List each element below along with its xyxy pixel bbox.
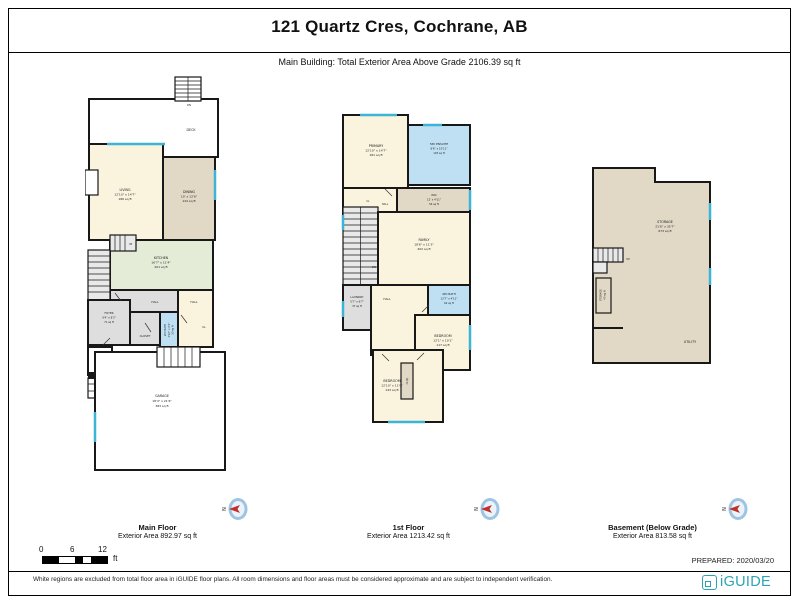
scale-0: 0 <box>39 545 43 554</box>
svg-text:5'7" x 6'7": 5'7" x 6'7" <box>350 300 364 304</box>
compass-n: N <box>474 507 480 511</box>
stairs-top <box>175 77 201 101</box>
stairs-left <box>88 250 110 300</box>
svg-text:WIC: WIC <box>431 193 437 197</box>
svg-text:5PC ENSUITE: 5PC ENSUITE <box>430 142 449 146</box>
main-floor-svg: DN DECK LIVING 12'10" x 14'7" 186 sq ft … <box>85 75 230 477</box>
bay-window <box>85 170 98 195</box>
stairs-dn-label: DN <box>372 265 376 269</box>
svg-text:10' x 12'6": 10' x 12'6" <box>181 195 198 199</box>
first-floor-svg: PRIMARY 12'10" x 14'7" 181 sq ft 5PC ENS… <box>340 105 477 445</box>
iguide-logo: iGUIDE <box>702 574 771 590</box>
main-floor-caption: Main Floor Exterior Area 892.97 sq ft <box>85 523 230 540</box>
svg-text:4PC BATH: 4PC BATH <box>442 292 456 296</box>
svg-text:FAMILY: FAMILY <box>418 238 430 242</box>
scale-bar-strip <box>42 556 108 564</box>
compass-n: N <box>222 507 228 511</box>
svg-text:BEDROOM: BEDROOM <box>383 379 400 383</box>
svg-text:40 sq ft: 40 sq ft <box>603 290 607 299</box>
floorplan-page: 121 Quartz Cres, Cochrane, AB Main Build… <box>0 0 799 616</box>
compass-main: N <box>222 494 252 524</box>
svg-text:LAUNDRY: LAUNDRY <box>350 295 364 299</box>
svg-text:30 sq ft: 30 sq ft <box>171 325 175 334</box>
laundry-label: LAUNDRY 5'7" x 6'7" 37 sq ft <box>350 295 364 308</box>
main-floor-area: Exterior Area 892.97 sq ft <box>85 532 230 540</box>
svg-text:2PC BATH: 2PC BATH <box>163 324 167 336</box>
first-floor-caption: 1st Floor Exterior Area 1213.42 sq ft <box>340 523 477 540</box>
svg-text:12'10" x 14'7": 12'10" x 14'7" <box>365 149 387 153</box>
first-floor-plan: PRIMARY 12'10" x 14'7" 181 sq ft 5PC ENS… <box>340 105 477 450</box>
svg-text:181 sq ft: 181 sq ft <box>369 153 383 157</box>
deck-label: DECK <box>186 128 196 132</box>
svg-text:18'4" x 21'6": 18'4" x 21'6" <box>152 399 172 403</box>
svg-text:8'6" x 10'11": 8'6" x 10'11" <box>431 147 448 151</box>
stairs <box>343 207 378 285</box>
main-floor-name: Main Floor <box>85 523 230 532</box>
svg-text:STORAGE: STORAGE <box>657 220 673 224</box>
svg-text:103 sq ft: 103 sq ft <box>433 151 444 155</box>
svg-text:202 sq ft: 202 sq ft <box>417 247 431 251</box>
svg-text:117 sq ft: 117 sq ft <box>436 343 450 347</box>
hall-left-label: HALL <box>151 300 159 304</box>
basement-caption: Basement (Below Grade) Exterior Area 813… <box>565 523 740 540</box>
svg-text:201 sq ft: 201 sq ft <box>154 265 168 269</box>
svg-text:143 sq ft: 143 sq ft <box>385 388 399 392</box>
svg-text:71 sq ft: 71 sq ft <box>104 320 114 324</box>
svg-text:DINING: DINING <box>183 190 195 194</box>
svg-text:9'4" x 8'2": 9'4" x 8'2" <box>102 316 116 320</box>
hall-right-label: HALL <box>190 300 198 304</box>
svg-text:673 sq ft: 673 sq ft <box>658 229 672 233</box>
scale-6: 6 <box>70 545 74 554</box>
stairs-up-label: UP <box>129 242 133 246</box>
compass-first: N <box>474 494 504 524</box>
cl-label: CL <box>202 325 206 329</box>
hall-small-label: HALL <box>382 202 389 206</box>
svg-text:KITCHEN: KITCHEN <box>154 256 169 260</box>
svg-text:BEDROOM: BEDROOM <box>434 334 451 338</box>
svg-text:21'6" x 35'7": 21'6" x 35'7" <box>655 225 675 229</box>
footer-rule <box>8 571 791 572</box>
prepared-date: PREPARED: 2020/03/20 <box>692 556 774 565</box>
iguide-logo-icon <box>702 575 717 590</box>
svg-text:186 sq ft: 186 sq ft <box>118 197 132 201</box>
stairs-top-label: DN <box>187 103 191 107</box>
page-subtitle: Main Building: Total Exterior Area Above… <box>0 57 799 67</box>
closet-label: CLOSET <box>140 334 151 338</box>
garage-room <box>95 352 225 470</box>
svg-text:18'6" x 11'3": 18'6" x 11'3" <box>414 243 434 247</box>
svg-text:GARAGE: GARAGE <box>155 394 169 398</box>
svg-text:16'7" x 11'4": 16'7" x 11'4" <box>151 261 171 265</box>
garage-entry-stairs <box>157 347 200 367</box>
main-floor-plan: DN DECK LIVING 12'10" x 14'7" 186 sq ft … <box>85 75 230 482</box>
compass-basement: N <box>722 494 752 524</box>
basement-svg: STORAGE 21'6" x 35'7" 673 sq ft UP STORA… <box>590 165 717 372</box>
compass-n: N <box>722 507 728 511</box>
svg-text:PRIMARY: PRIMARY <box>369 144 384 148</box>
first-floor-area: Exterior Area 1213.42 sq ft <box>340 532 477 540</box>
utility-label: UTILITY <box>684 340 697 344</box>
svg-text:37 sq ft: 37 sq ft <box>352 304 362 308</box>
svg-text:CL(S): CL(S) <box>405 378 409 385</box>
page-title: 121 Quartz Cres, Cochrane, AB <box>0 17 799 37</box>
svg-text:STORAGE: STORAGE <box>599 289 603 301</box>
svg-text:12' x 4'11": 12' x 4'11" <box>427 198 441 202</box>
basement-name: Basement (Below Grade) <box>565 523 740 532</box>
scale-bar: 0 6 12 ft <box>40 545 140 569</box>
svg-text:12'10" x 14'7": 12'10" x 14'7" <box>114 193 136 197</box>
svg-text:12'1" x 10'1": 12'1" x 10'1" <box>433 339 453 343</box>
ensuite-room <box>408 125 470 185</box>
svg-text:12'10" x 11'9": 12'10" x 11'9" <box>381 384 403 388</box>
svg-text:4'10" x 6'1": 4'10" x 6'1" <box>167 323 171 338</box>
closet-cls-label: CL(S) <box>405 378 409 385</box>
scale-unit: ft <box>113 554 117 563</box>
disclaimer-text: White regions are excluded from total fl… <box>33 576 653 583</box>
basement-area: Exterior Area 813.58 sq ft <box>565 532 740 540</box>
iguide-logo-text: iGUIDE <box>720 574 771 590</box>
svg-text:383 sq ft: 383 sq ft <box>155 404 169 408</box>
first-floor-name: 1st Floor <box>340 523 477 532</box>
scale-12: 12 <box>98 545 107 554</box>
svg-text:FOYER: FOYER <box>104 311 113 315</box>
storage-room <box>593 168 710 363</box>
svg-text:54 sq ft: 54 sq ft <box>429 202 439 206</box>
basement-plan: STORAGE 21'6" x 35'7" 673 sq ft UP STORA… <box>590 165 717 377</box>
svg-text:124 sq ft: 124 sq ft <box>182 199 196 203</box>
svg-text:LIVING: LIVING <box>119 188 131 192</box>
title-rule <box>8 52 791 53</box>
svg-text:12'7" x 4'11": 12'7" x 4'11" <box>441 297 458 301</box>
hall-label: HALL <box>383 297 391 301</box>
stairs-up-label: UP <box>626 257 630 261</box>
svg-text:62 sq ft: 62 sq ft <box>444 301 454 305</box>
closet-room <box>130 312 160 345</box>
